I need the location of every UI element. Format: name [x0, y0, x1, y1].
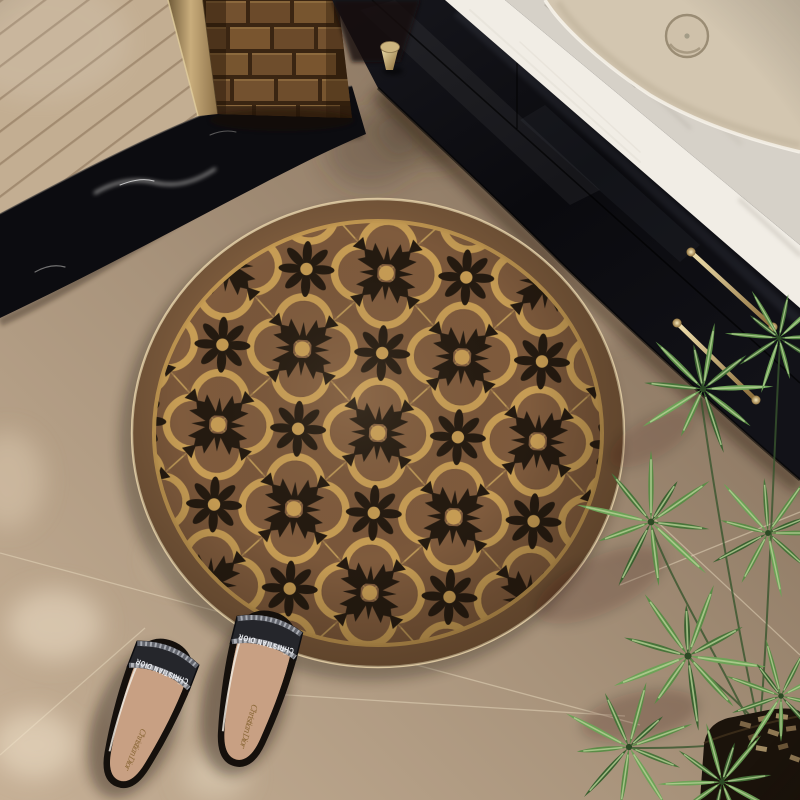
bathroom-photo: Christian Dior CHRISTIAN DIOR [0, 0, 800, 800]
vignette-overlay [0, 0, 800, 800]
